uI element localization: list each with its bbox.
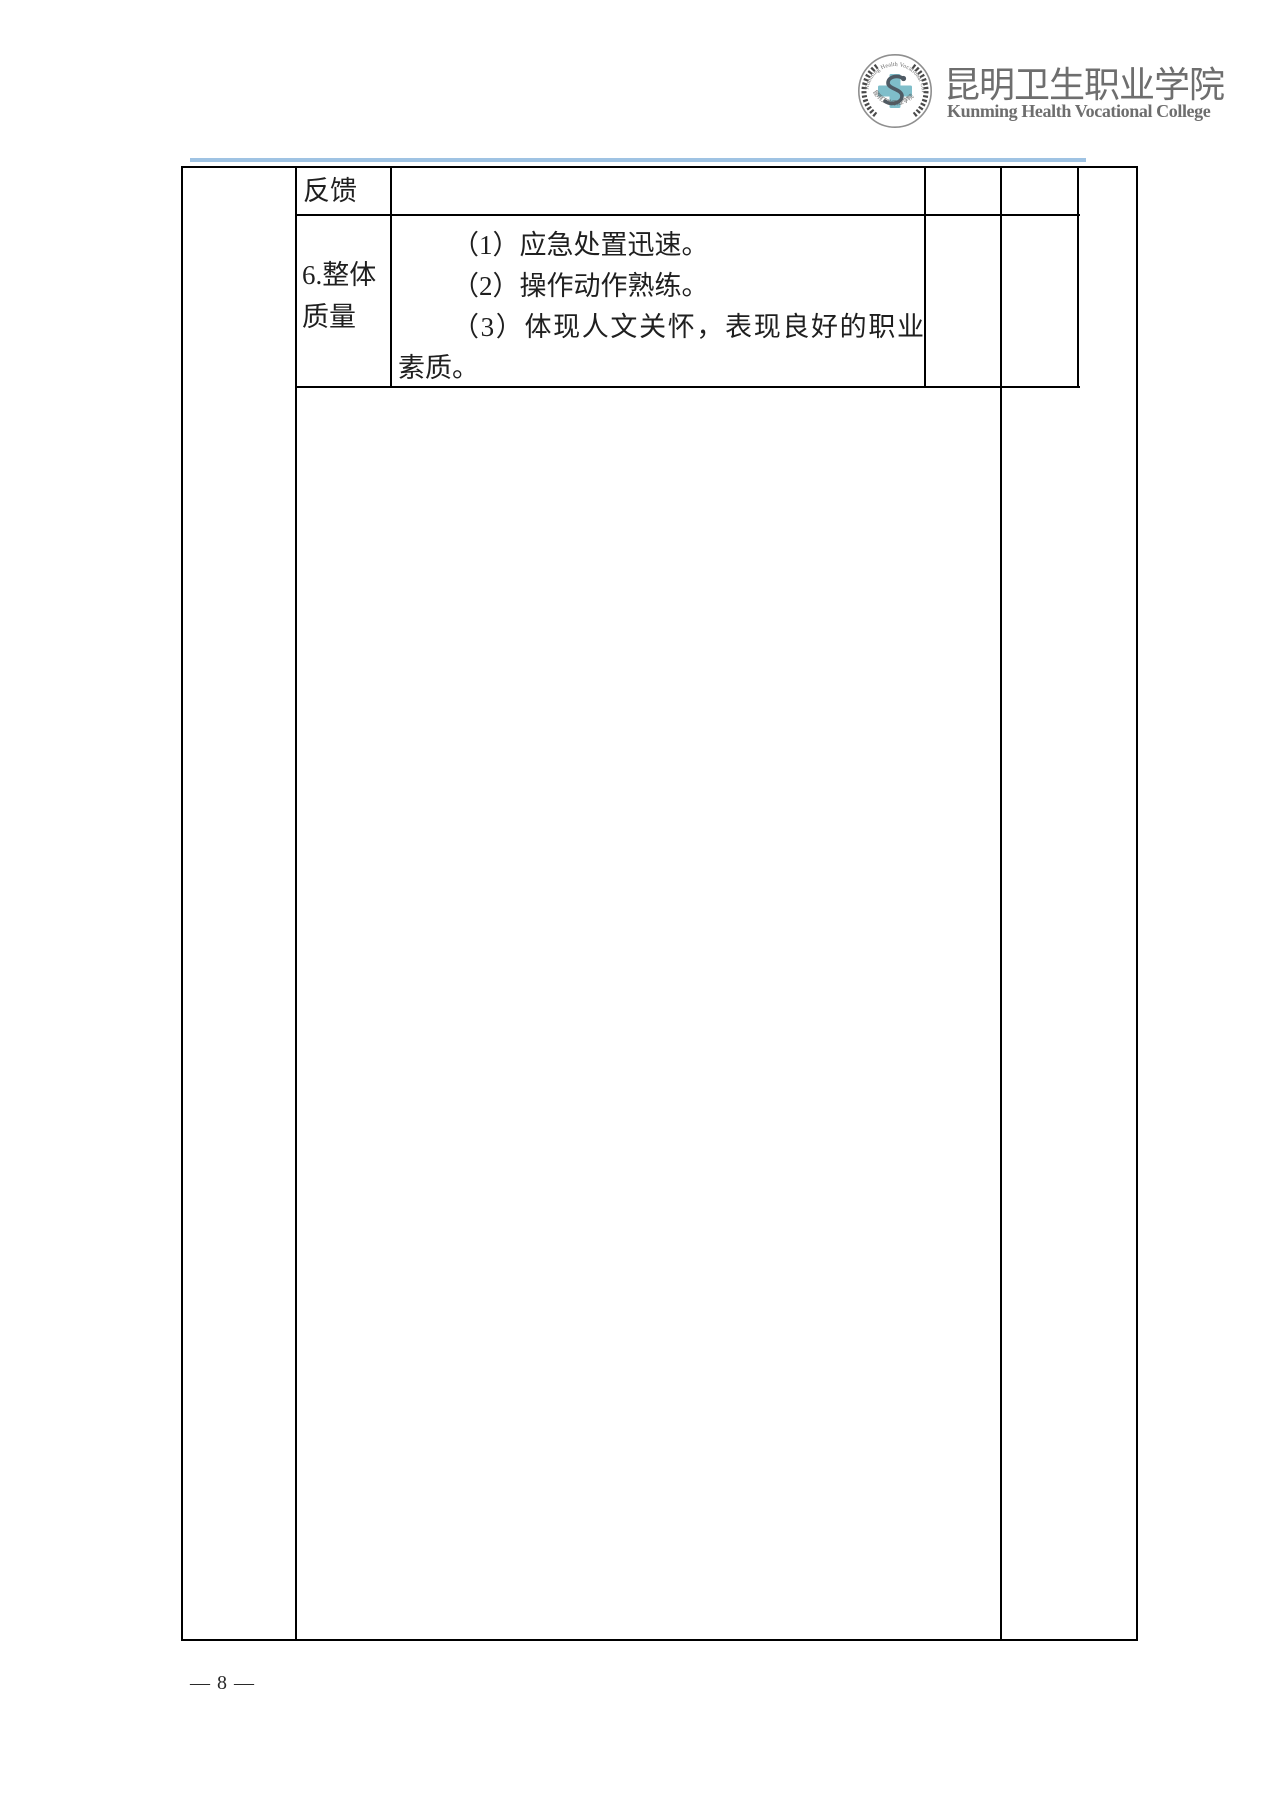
quality-item-2: （2）操作动作熟练。 <box>398 266 924 307</box>
college-name-en: Kunming Health Vocational College <box>947 101 1237 122</box>
college-seal-logo: Kunming Health Vocational College 昆明卫生职业… <box>857 53 933 129</box>
table-border-bottom <box>181 1639 1138 1641</box>
continuation-empty-cell <box>297 388 1000 1639</box>
feedback-score-cell-1 <box>926 168 1000 214</box>
left-tall-cell <box>183 168 295 1639</box>
accent-line <box>190 158 1086 162</box>
right-tall-cell <box>1079 168 1136 1639</box>
page-number: — 8 — <box>190 1672 255 1695</box>
document-page: { "header": { "college_name_zh": "昆明卫生职业… <box>0 0 1274 1801</box>
quality-label-cell: 6.整体质量 <box>302 254 394 338</box>
feedback-score-cell-2 <box>1002 168 1077 214</box>
quality-criteria-cell: （1）应急处置迅速。 （2）操作动作熟练。 （3）体现人文关怀，表现良好的职业素… <box>398 225 924 389</box>
col-divider-4 <box>1000 166 1002 1641</box>
quality-item-3: （3）体现人文关怀，表现良好的职业素质。 <box>398 307 924 389</box>
quality-score-cell-1 <box>926 216 1000 386</box>
table-border-right <box>1136 166 1138 1641</box>
quality-score-cell-2 <box>1002 216 1077 386</box>
quality-item-1: （1）应急处置迅速。 <box>398 225 924 266</box>
feedback-label-cell: 反馈 <box>303 167 393 215</box>
